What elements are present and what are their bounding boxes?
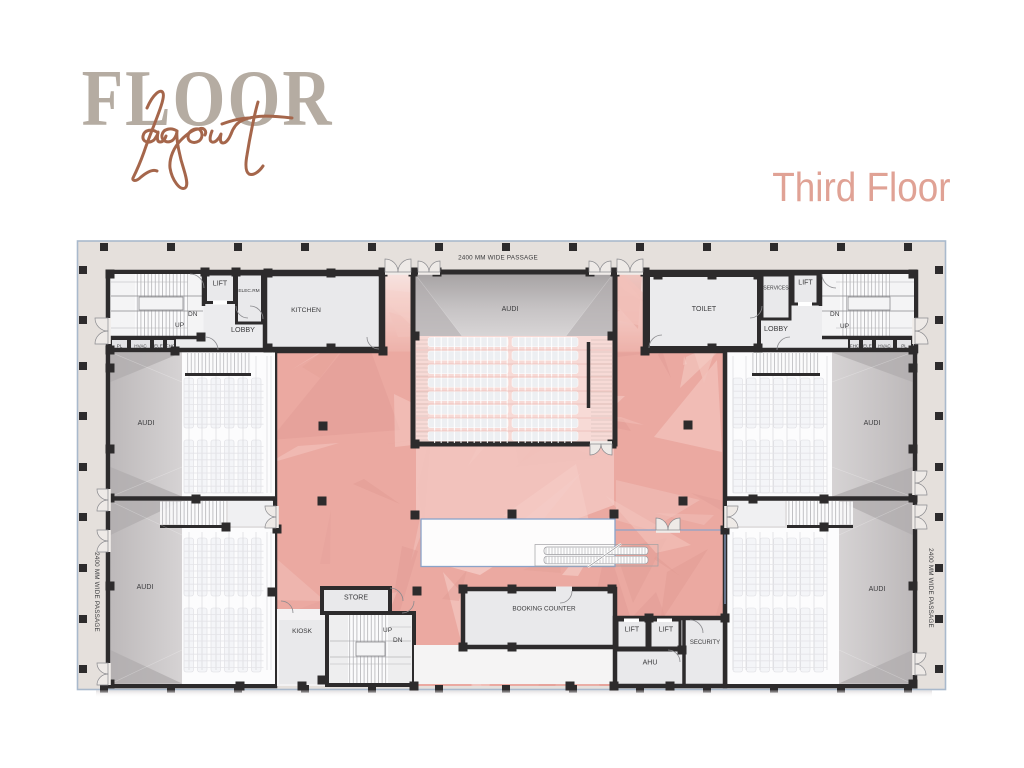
svg-text:FLOOR: FLOOR [82,55,334,143]
svg-text:AUDI: AUDI [502,306,519,313]
svg-text:DN: DN [393,637,403,644]
svg-text:BOOKING COUNTER: BOOKING COUNTER [512,606,576,613]
svg-text:LOBBY: LOBBY [231,325,255,334]
svg-text:DN: DN [188,311,198,318]
svg-text:LIFT: LIFT [659,627,674,634]
svg-text:AUDI: AUDI [869,586,886,593]
svg-text:AHU: AHU [643,660,658,667]
svg-text:2400 MM WIDE PASSAGE: 2400 MM WIDE PASSAGE [458,255,538,262]
svg-text:UP: UP [383,627,392,634]
svg-text:2400 MM WIDE PASSAGE: 2400 MM WIDE PASSAGE [93,552,100,632]
svg-text:SECURITY: SECURITY [690,640,720,646]
svg-text:Third Floor: Third Floor [772,165,950,210]
svg-text:LIFT: LIFT [625,627,640,634]
svg-text:LOBBY: LOBBY [764,324,788,333]
svg-text:UP: UP [175,322,184,329]
svg-text:ELEC.RM: ELEC.RM [238,288,259,294]
svg-text:2400 MM WIDE PASSAGE: 2400 MM WIDE PASSAGE [927,548,934,628]
svg-text:AUDI: AUDI [137,584,154,591]
svg-text:AUDI: AUDI [138,420,155,427]
svg-text:LIFT: LIFT [213,281,228,288]
svg-text:UP: UP [840,323,849,330]
svg-text:AUDI: AUDI [864,420,881,427]
svg-text:STORE: STORE [344,595,368,602]
svg-text:SERVICES: SERVICES [763,286,789,292]
svg-text:KITCHEN: KITCHEN [291,307,321,314]
svg-text:DN: DN [830,311,840,318]
svg-text:TOILET: TOILET [692,306,717,313]
svg-text:KIOSK: KIOSK [292,628,313,635]
svg-text:LIFT: LIFT [798,280,813,287]
